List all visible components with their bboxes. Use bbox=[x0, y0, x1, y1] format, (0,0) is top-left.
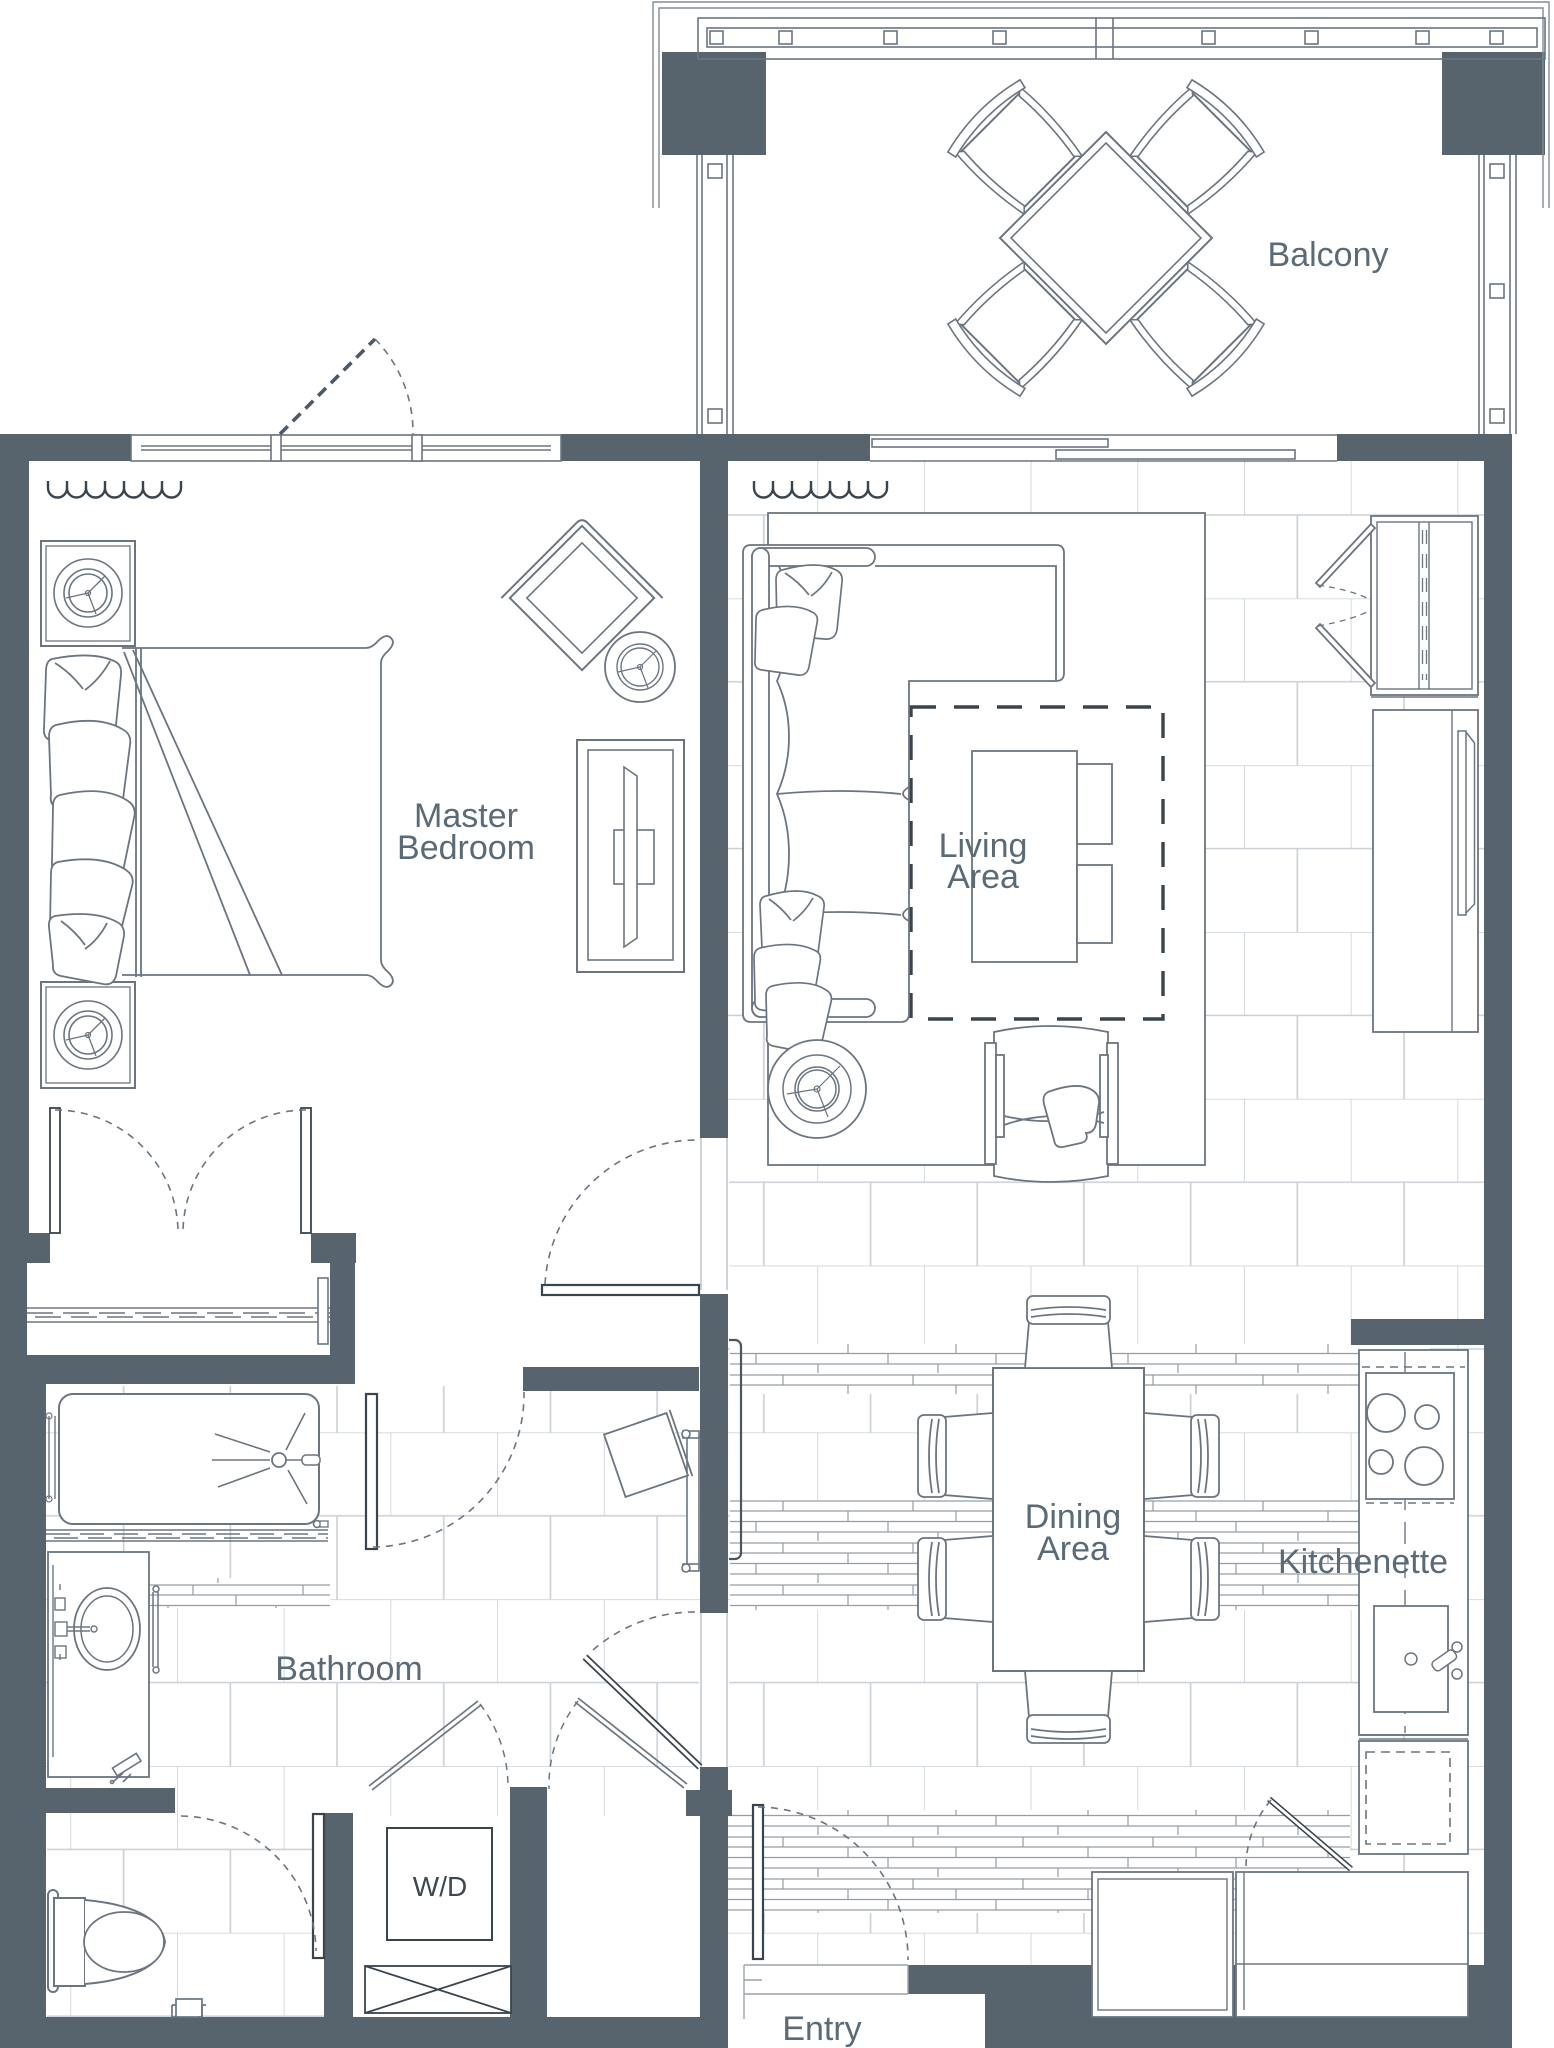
svg-text:Bedroom: Bedroom bbox=[397, 829, 535, 867]
svg-text:Area: Area bbox=[947, 858, 1019, 896]
svg-text:Bathroom: Bathroom bbox=[275, 1650, 422, 1688]
svg-text:W/D: W/D bbox=[413, 1871, 467, 1902]
svg-text:Area: Area bbox=[1037, 1530, 1109, 1568]
svg-text:Entry: Entry bbox=[782, 2010, 861, 2048]
svg-text:Balcony: Balcony bbox=[1268, 236, 1389, 274]
svg-text:Kitchenette: Kitchenette bbox=[1278, 1543, 1448, 1581]
